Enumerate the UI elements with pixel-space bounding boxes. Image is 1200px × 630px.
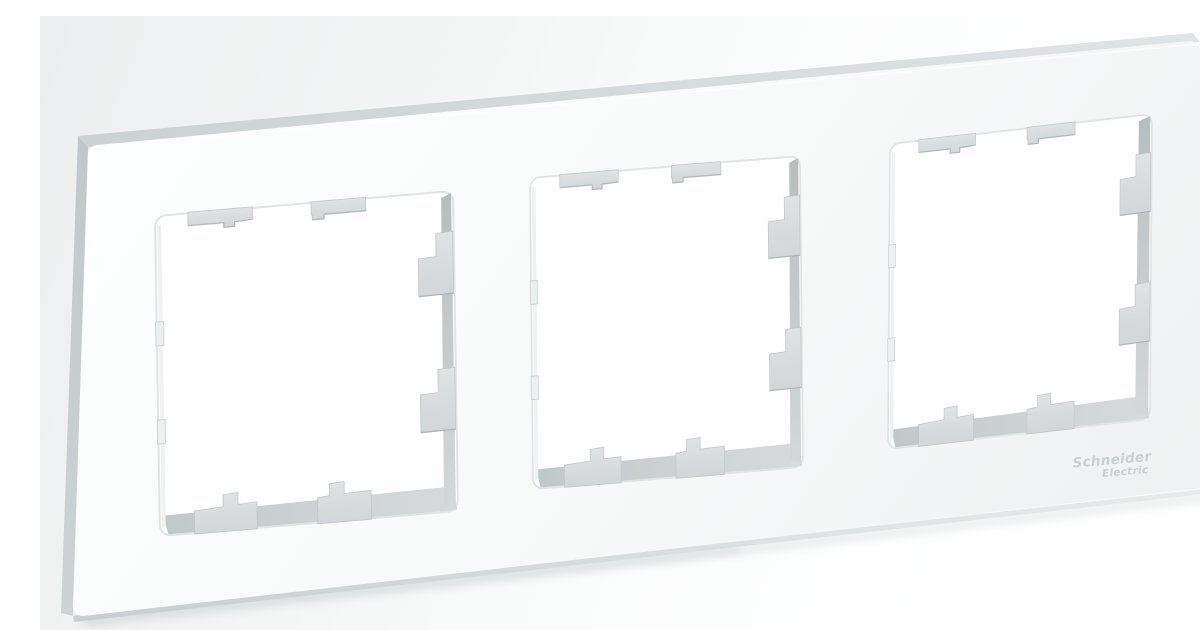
tab-left-upper — [530, 281, 537, 305]
tab-left-lower — [157, 419, 165, 444]
tab-left-lower — [531, 376, 538, 400]
window-1 — [154, 190, 458, 537]
window-2 — [529, 155, 803, 490]
tab-left-lower — [888, 338, 895, 362]
window-2-opening — [530, 156, 803, 489]
tab-left-upper — [156, 321, 164, 346]
frame-illustration: Schneider Electric — [40, 16, 1200, 630]
window-1-opening — [155, 191, 458, 536]
tab-left-upper — [888, 244, 895, 268]
window-3 — [887, 113, 1152, 450]
product-photo: Schneider Electric — [40, 16, 1200, 630]
window-3-opening — [888, 114, 1152, 449]
